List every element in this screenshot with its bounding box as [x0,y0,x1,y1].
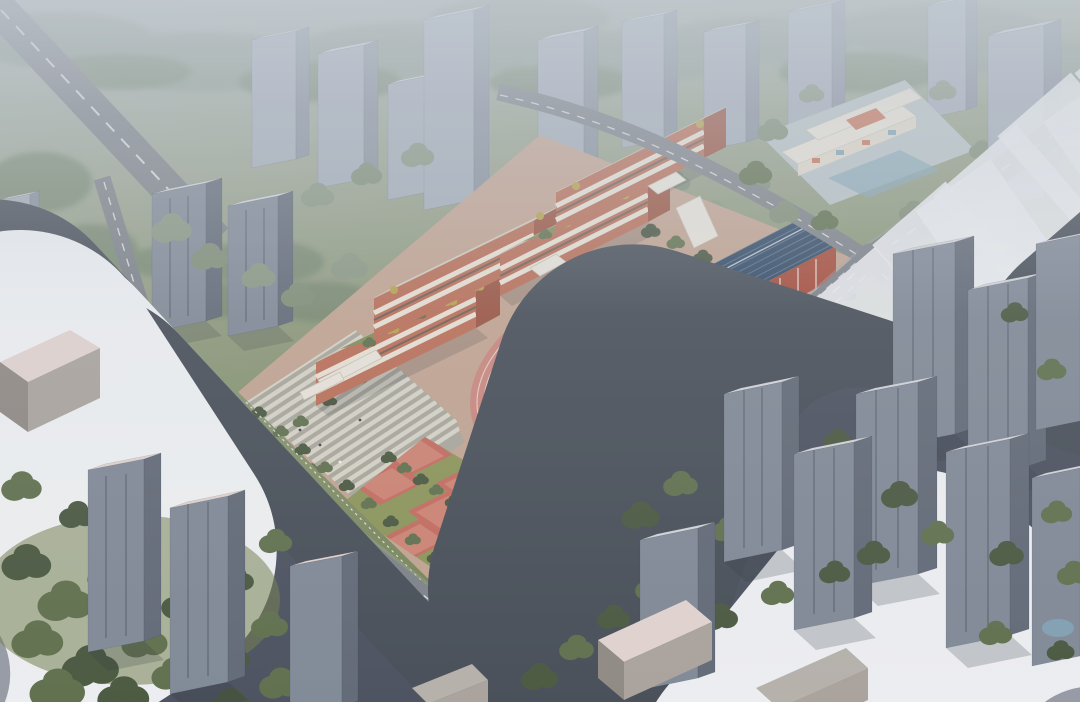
aerial-rendering: Aerial rendering of a planned school cam… [0,0,1080,702]
scene-canvas: Aerial rendering of a planned school cam… [0,0,1080,702]
atmosphere-tint [0,0,1080,702]
